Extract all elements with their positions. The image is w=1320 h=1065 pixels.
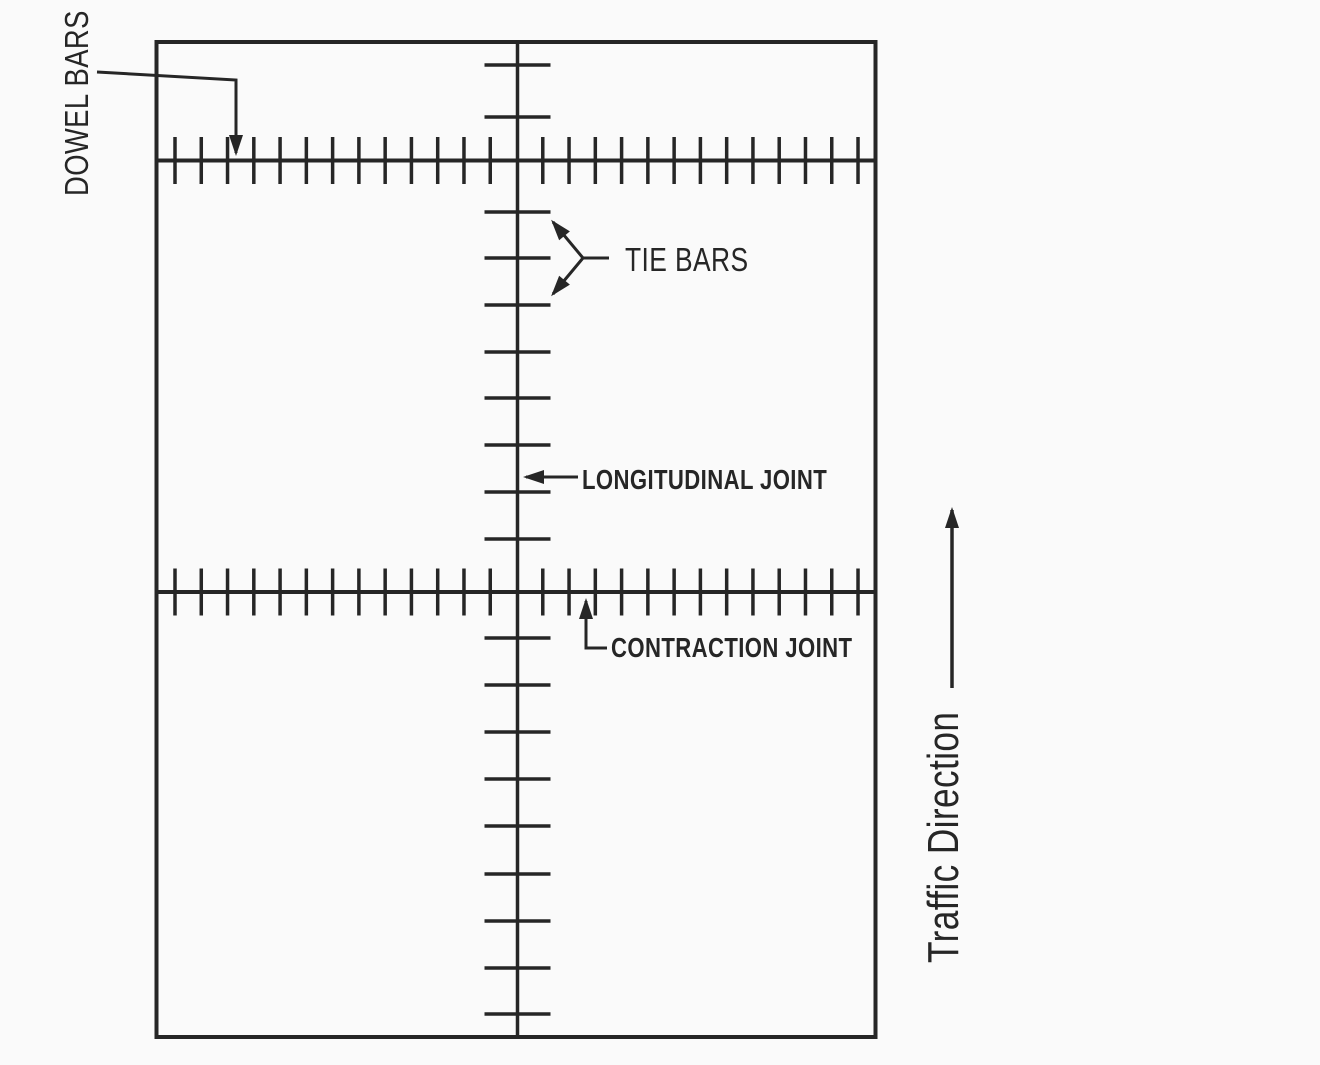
dowel-bars-leader [97, 72, 236, 153]
tie-bars-leader-lower-arrow [553, 258, 583, 294]
dowel-bars-label: DOWEL BARS [60, 10, 95, 196]
dowel-bars-leader-line [97, 72, 236, 153]
tie-bars-leader [553, 222, 609, 294]
traffic-direction-label: Traffic Direction [921, 712, 967, 963]
tie-bars-leader-upper-arrow [553, 222, 583, 258]
contraction-joint-label: CONTRACTION JOINT [611, 633, 852, 662]
longitudinal-joint-label: LONGITUDINAL JOINT [582, 465, 827, 494]
diagram-canvas [0, 0, 1320, 1065]
tie-bars-label: TIE BARS [625, 243, 749, 278]
pavement-joint-diagram: DOWEL BARS TIE BARS LONGITUDINAL JOINT C… [0, 0, 1320, 1065]
